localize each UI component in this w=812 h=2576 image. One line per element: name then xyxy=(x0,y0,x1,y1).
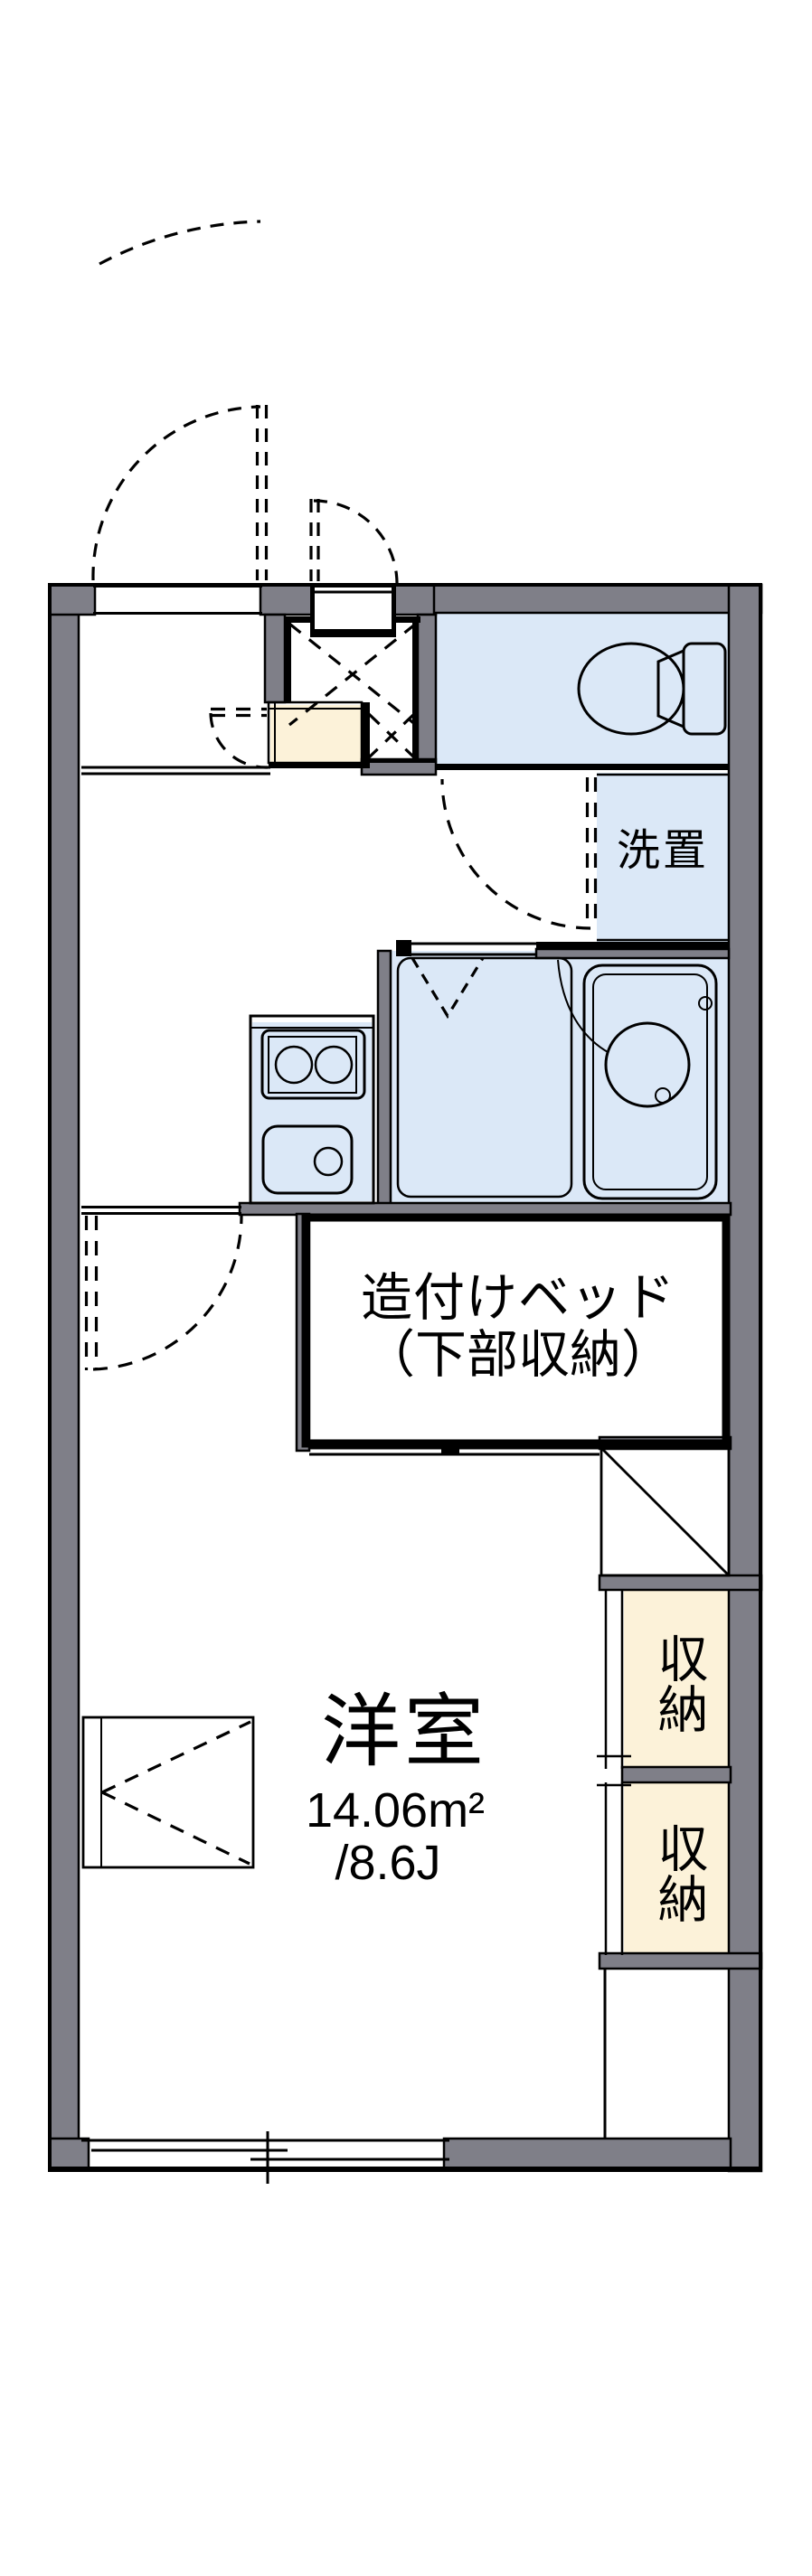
wall-entry-left xyxy=(265,615,285,702)
room-door-arc xyxy=(93,1214,241,1369)
folding-table-dash xyxy=(102,1722,250,1792)
kitchen-counter-top xyxy=(252,1022,372,1201)
wall-closet-bottom xyxy=(600,1953,761,1969)
outer-line-right xyxy=(759,583,762,2172)
wall-top-pier xyxy=(260,585,312,615)
wall-kitchen-bath xyxy=(378,951,391,1214)
bath-top-wall xyxy=(536,942,729,950)
entry-door-outer-arc xyxy=(99,221,260,264)
wall-bottom-left-corner xyxy=(50,2139,89,2168)
closet-lower-label: 収納 xyxy=(650,1810,706,1936)
toilet-bottom-wall xyxy=(436,764,729,770)
wall-room-divider xyxy=(240,1203,731,1215)
wall-top-right xyxy=(434,585,761,613)
front-door-arc xyxy=(314,501,397,583)
wall-closet-divider xyxy=(622,1767,731,1782)
entry-door-arc xyxy=(93,407,260,580)
open-shelf xyxy=(601,1448,729,1575)
built-in-bed-label: 造付けベッド xyxy=(298,1271,738,1327)
outer-line-bottom xyxy=(48,2167,762,2172)
entry-step-edge xyxy=(310,629,395,637)
entry-door-swing-arcs xyxy=(93,221,397,583)
outer-line-left xyxy=(48,583,52,2172)
entry-wall-left-line xyxy=(285,616,291,703)
entry-bottom-line xyxy=(362,759,436,763)
washer-space-label: 洗置 xyxy=(592,828,733,875)
open-shelf-diagonal xyxy=(601,1448,729,1575)
room-name-label: 洋室 xyxy=(250,1688,558,1774)
wall-left xyxy=(50,585,79,2169)
shoe-cabinet xyxy=(270,705,362,763)
shoe-cabinet-right-edge xyxy=(362,702,370,768)
bath-door-stub xyxy=(396,940,411,956)
wall-bottom-right xyxy=(444,2139,731,2168)
wall-bath-top xyxy=(536,949,729,958)
wall-top-pier-2 xyxy=(393,585,436,615)
wall-entry-right xyxy=(418,615,436,766)
wall-top-left-corner xyxy=(50,585,95,615)
entry-wall-right-line xyxy=(412,616,419,762)
wash-basin-icon xyxy=(606,1023,689,1106)
room-area-label: 14.06m² xyxy=(232,1784,558,1837)
entry-wall-topleft-line xyxy=(285,616,313,623)
shoe-door-arc xyxy=(211,713,268,767)
dashed-symbols xyxy=(87,624,596,1864)
washroom-door-arc xyxy=(442,779,590,928)
wall-shelf-divider xyxy=(600,1575,761,1590)
built-in-bed-sublabel: （下部収納） xyxy=(298,1328,738,1384)
closet-upper-label: 収納 xyxy=(650,1620,706,1746)
room-area-jo-label: /8.6J xyxy=(225,1837,551,1889)
floor-plan-page: 洗置 造付けベッド （下部収納） 洋室 14.06m² /8.6J 収納 収納 xyxy=(0,0,812,2576)
